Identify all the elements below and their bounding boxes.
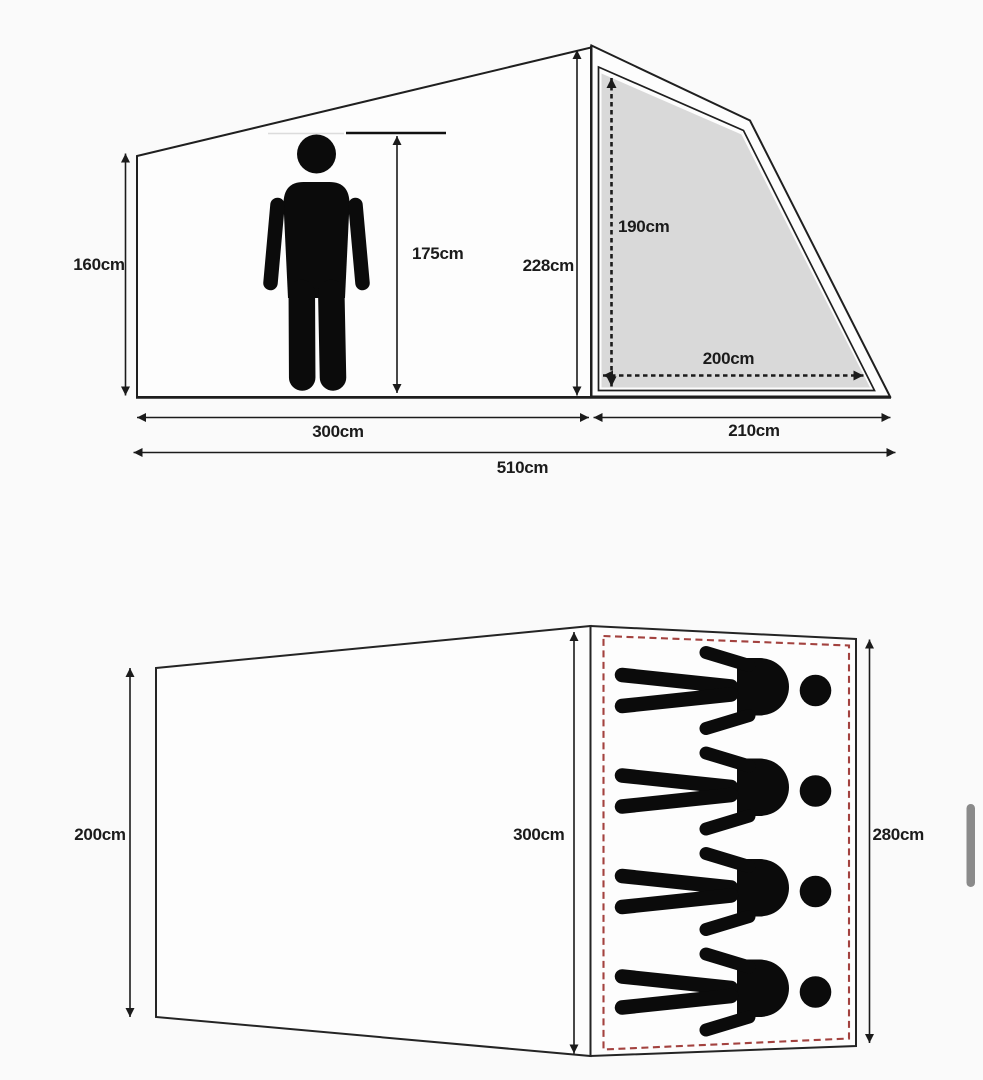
svg-text:160cm: 160cm xyxy=(73,255,125,274)
svg-text:190cm: 190cm xyxy=(618,217,670,236)
svg-text:200cm: 200cm xyxy=(703,349,755,368)
svg-text:228cm: 228cm xyxy=(523,256,575,275)
svg-text:280cm: 280cm xyxy=(873,825,925,844)
svg-text:200cm: 200cm xyxy=(74,825,126,844)
svg-text:175cm: 175cm xyxy=(412,244,464,263)
svg-text:210cm: 210cm xyxy=(728,421,780,440)
svg-text:300cm: 300cm xyxy=(513,825,565,844)
svg-text:510cm: 510cm xyxy=(497,458,549,477)
svg-text:300cm: 300cm xyxy=(312,422,364,441)
